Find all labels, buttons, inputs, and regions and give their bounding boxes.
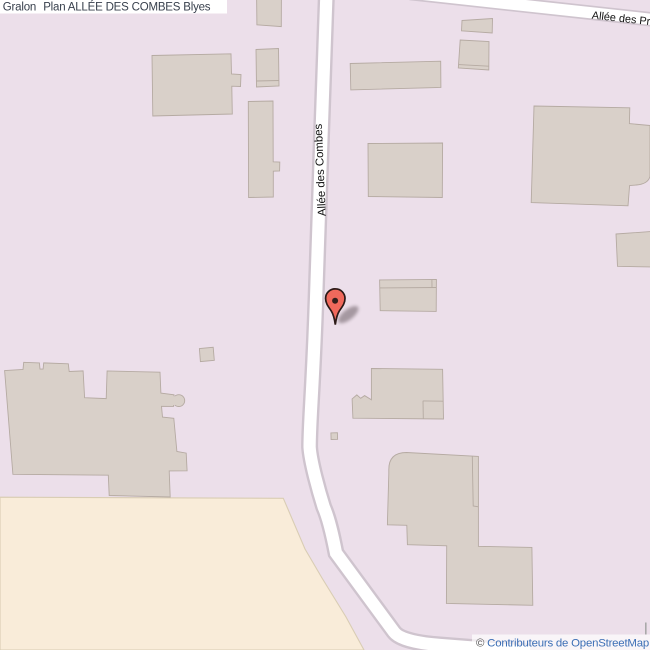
svg-text:© Contributeurs de OpenStreetM: © Contributeurs de OpenStreetMap	[476, 638, 649, 650]
svg-text:GralonPlan ALLÉE DES COMBES Bl: GralonPlan ALLÉE DES COMBES Blyes	[3, 1, 211, 14]
